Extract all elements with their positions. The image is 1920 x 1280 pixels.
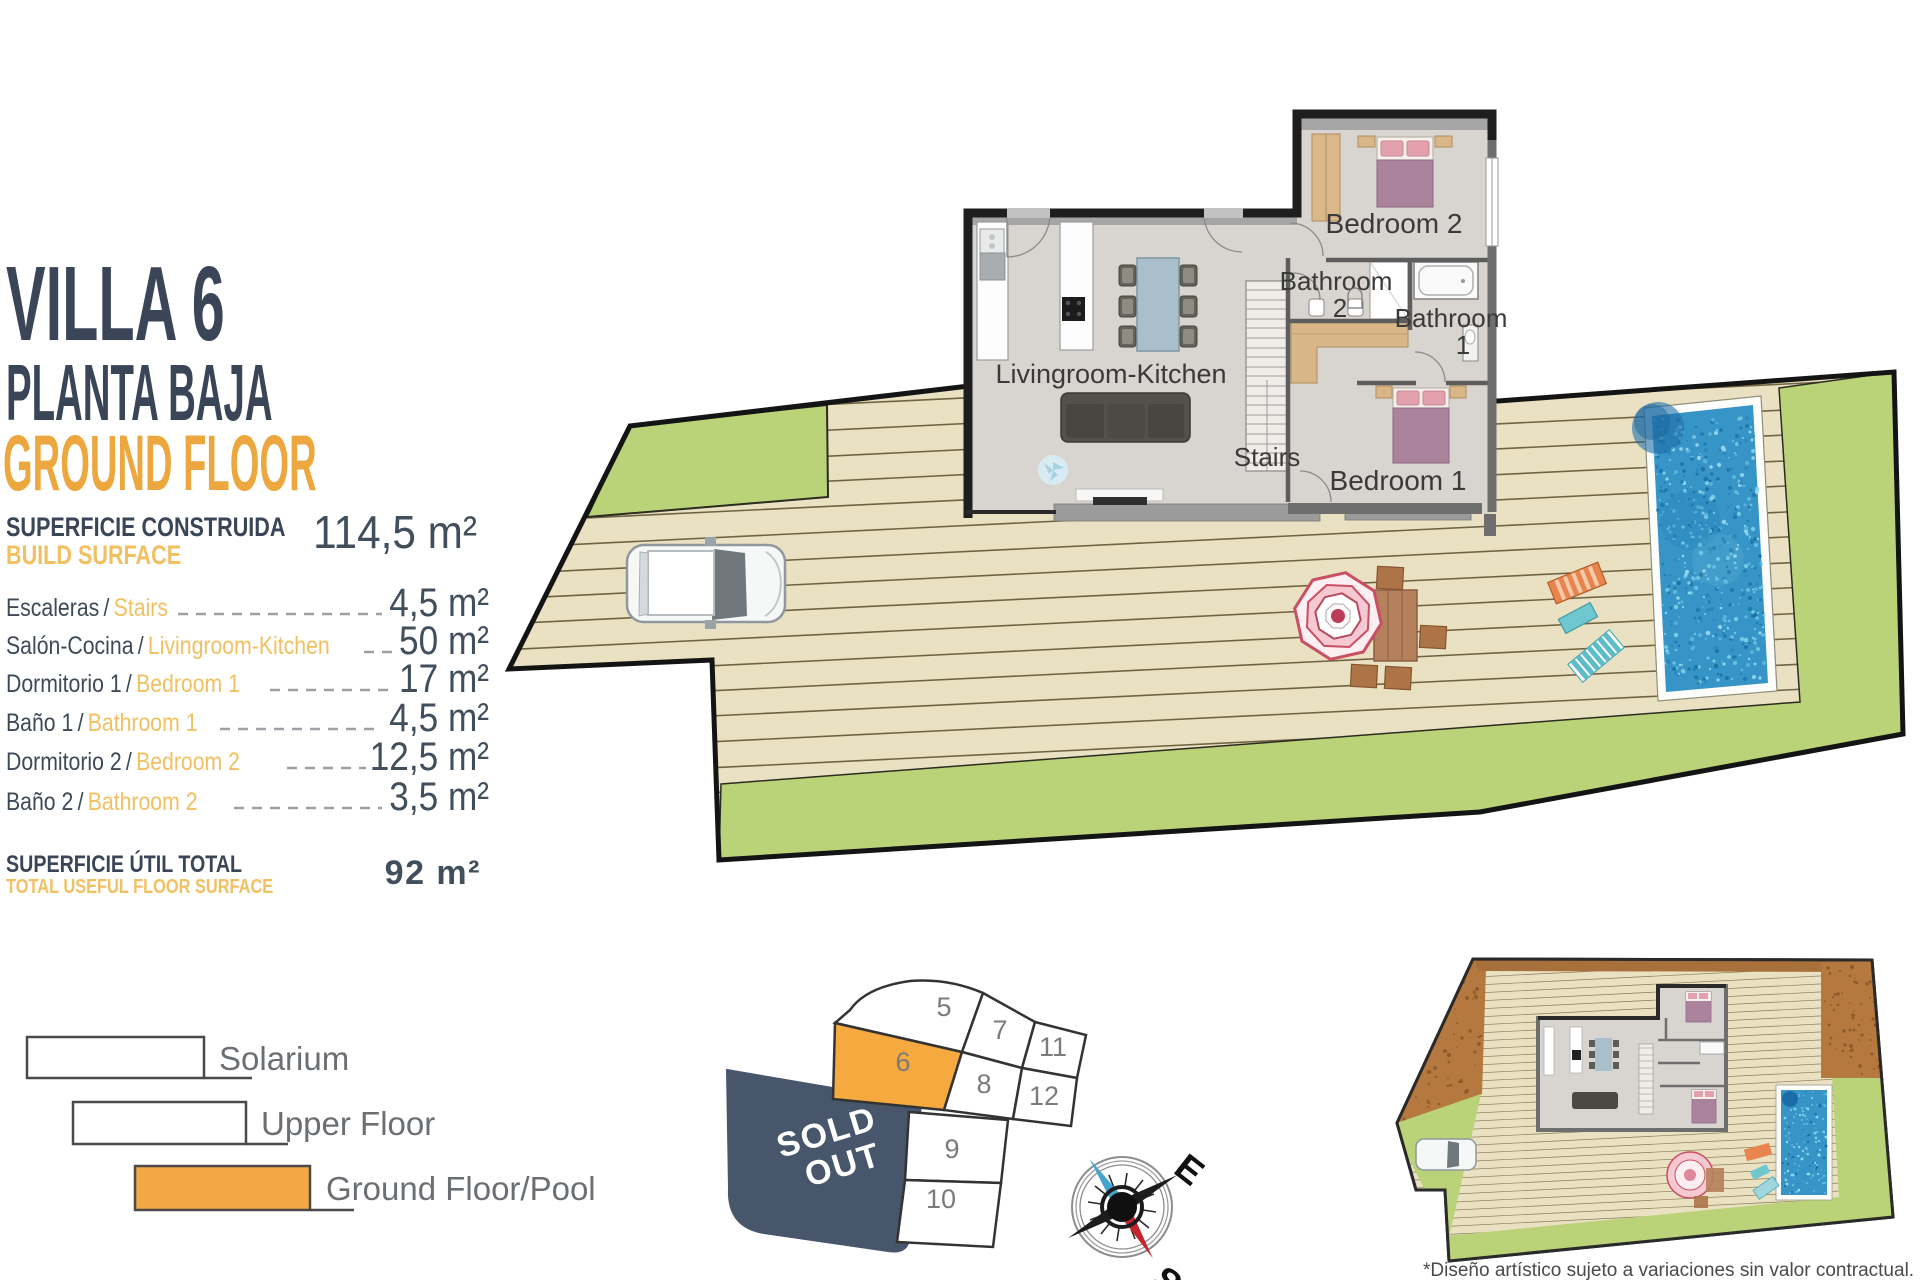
svg-text:5: 5 xyxy=(936,992,951,1022)
svg-text:Livingroom-Kitchen: Livingroom-Kitchen xyxy=(995,359,1226,389)
svg-text:Ground Floor/Pool: Ground Floor/Pool xyxy=(326,1170,596,1207)
svg-text:8: 8 xyxy=(976,1069,991,1099)
svg-text:Baño 2 / Bathroom 2: Baño 2 / Bathroom 2 xyxy=(6,787,198,815)
svg-text:Bathroom: Bathroom xyxy=(1280,266,1393,296)
svg-text:17 m²: 17 m² xyxy=(399,656,489,701)
svg-text:2: 2 xyxy=(1333,293,1347,323)
svg-text:Stairs: Stairs xyxy=(1234,442,1300,472)
svg-text:6: 6 xyxy=(895,1047,910,1077)
svg-text:Solarium: Solarium xyxy=(219,1040,349,1077)
svg-text:11: 11 xyxy=(1039,1032,1067,1062)
svg-text:Bedroom 2: Bedroom 2 xyxy=(1326,208,1463,239)
svg-text:Bathroom: Bathroom xyxy=(1395,303,1508,333)
svg-text:Bedroom 1: Bedroom 1 xyxy=(1330,465,1467,496)
svg-text:92 m²: 92 m² xyxy=(385,854,481,892)
svg-text:3,5 m²: 3,5 m² xyxy=(389,774,489,819)
svg-text:4,5 m²: 4,5 m² xyxy=(389,695,489,740)
svg-text:9: 9 xyxy=(944,1134,959,1164)
svg-text:Dormitorio 1 / Bedroom 1: Dormitorio 1 / Bedroom 1 xyxy=(6,669,240,697)
svg-text:12: 12 xyxy=(1029,1081,1059,1111)
svg-text:SUPERFICIE ÚTIL TOTAL: SUPERFICIE ÚTIL TOTAL xyxy=(6,850,242,877)
svg-text:Escaleras / Stairs: Escaleras / Stairs xyxy=(6,593,168,621)
svg-text:Salón-Cocina / Livingroom-Kitc: Salón-Cocina / Livingroom-Kitchen xyxy=(6,631,330,659)
svg-text:10: 10 xyxy=(926,1184,956,1214)
svg-text:*Diseño artístico sujeto a var: *Diseño artístico sujeto a variaciones s… xyxy=(1423,1260,1914,1280)
svg-text:Upper Floor: Upper Floor xyxy=(261,1105,435,1142)
svg-text:BUILD SURFACE: BUILD SURFACE xyxy=(6,541,181,571)
svg-text:Baño 1 / Bathroom 1: Baño 1 / Bathroom 1 xyxy=(6,708,198,736)
svg-text:114,5 m²: 114,5 m² xyxy=(313,507,477,558)
svg-text:Dormitorio 2 / Bedroom 2: Dormitorio 2 / Bedroom 2 xyxy=(6,747,240,775)
svg-text:VILLA 6: VILLA 6 xyxy=(6,245,225,363)
svg-text:7: 7 xyxy=(992,1015,1007,1045)
svg-text:12,5 m²: 12,5 m² xyxy=(370,734,489,779)
svg-text:TOTAL USEFUL FLOOR SURFACE: TOTAL USEFUL FLOOR SURFACE xyxy=(6,874,273,897)
svg-text:SUPERFICIE CONSTRUIDA: SUPERFICIE CONSTRUIDA xyxy=(6,513,285,543)
svg-text:1: 1 xyxy=(1456,330,1470,360)
svg-text:GROUND FLOOR: GROUND FLOOR xyxy=(3,420,317,508)
